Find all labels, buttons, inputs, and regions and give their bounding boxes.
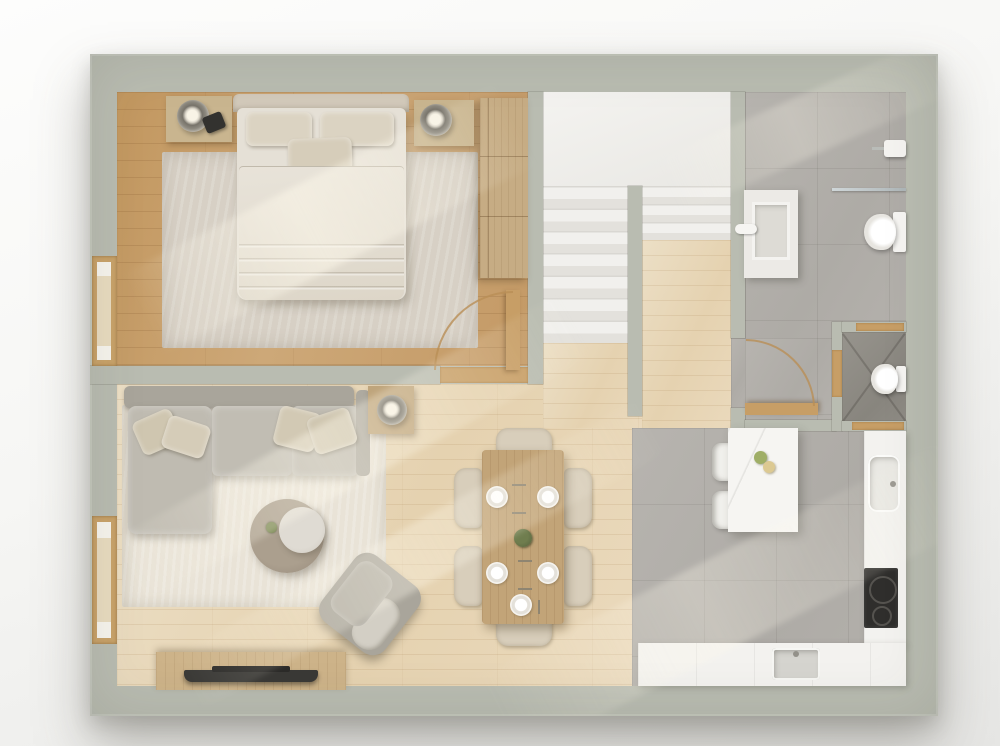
- stair-divider-wall: [628, 186, 642, 416]
- cutlery: [518, 560, 532, 562]
- sink-faucet: [793, 651, 799, 657]
- tv: [184, 666, 318, 686]
- shower-head: [884, 140, 906, 157]
- living-window: [92, 516, 117, 644]
- wc-threshold-left: [832, 350, 842, 397]
- bedroom-window: [92, 256, 117, 366]
- sofa-backrest: [124, 386, 354, 408]
- shower-glass-panel: [832, 188, 906, 191]
- fruit-pear: [763, 461, 775, 473]
- toilet-bowl: [864, 214, 896, 250]
- wall-bedroom-living: [90, 366, 440, 384]
- centerpiece-plant: [514, 529, 532, 547]
- wc-threshold-top: [856, 323, 904, 331]
- table-lamp-right: [420, 104, 452, 136]
- cutlery: [512, 512, 526, 514]
- wardrobe-seam: [488, 98, 489, 278]
- cutlery: [538, 600, 540, 614]
- side-table-lamp: [377, 395, 407, 425]
- wardrobe: [480, 98, 528, 278]
- stair-flight-left: [543, 186, 628, 343]
- plate: [537, 562, 559, 584]
- bedroom-door-leaf: [506, 290, 520, 370]
- stair-flight-right: [642, 186, 731, 240]
- kitchen-sink: [868, 455, 900, 512]
- kitchen-island: [728, 428, 798, 532]
- vanity-basin: [752, 202, 790, 260]
- dining-chair-left-2: [454, 546, 482, 606]
- dining-table: [482, 450, 564, 624]
- coffee-table-white: [279, 507, 325, 553]
- window-glass: [97, 622, 111, 638]
- prep-sink: [772, 648, 820, 680]
- wall-stairs-bathroom: [731, 92, 745, 338]
- plate: [486, 486, 508, 508]
- cutlery: [512, 484, 526, 486]
- bathroom-doorway-floor: [731, 338, 745, 408]
- plate: [537, 486, 559, 508]
- wc-toilet-bowl: [871, 364, 898, 394]
- window-glass: [97, 346, 111, 360]
- dining-chair-right-2: [564, 546, 592, 606]
- shower-arm: [872, 147, 884, 150]
- window-frame: [97, 522, 111, 638]
- dining-chair-left-1: [454, 468, 482, 528]
- tv-stand: [212, 666, 290, 672]
- cutlery: [518, 588, 532, 590]
- window-glass: [97, 262, 111, 276]
- cooktop: [864, 568, 898, 628]
- plate: [510, 594, 532, 616]
- wc-threshold-bottom: [852, 422, 904, 430]
- coffee-table-plant: [266, 522, 277, 533]
- stair-landing: [543, 92, 731, 186]
- bed-blanket-folds: [239, 244, 404, 300]
- vanity: [744, 190, 798, 278]
- bed: [237, 108, 406, 300]
- burner-large: [869, 576, 897, 604]
- floor-plan-render: [0, 0, 1000, 746]
- wall-stairs-bathroom-lower: [731, 408, 745, 430]
- vanity-faucet: [735, 224, 757, 234]
- bathroom-door-leaf: [745, 403, 818, 415]
- sink-faucet: [890, 481, 896, 487]
- hall-floor-right-flight: [642, 240, 731, 428]
- window-glass: [97, 522, 111, 538]
- burner-small: [872, 606, 892, 626]
- dining-chair-right-1: [564, 468, 592, 528]
- plate: [486, 562, 508, 584]
- wall-bedroom-stairs: [528, 92, 543, 384]
- apartment-plan: [90, 54, 938, 716]
